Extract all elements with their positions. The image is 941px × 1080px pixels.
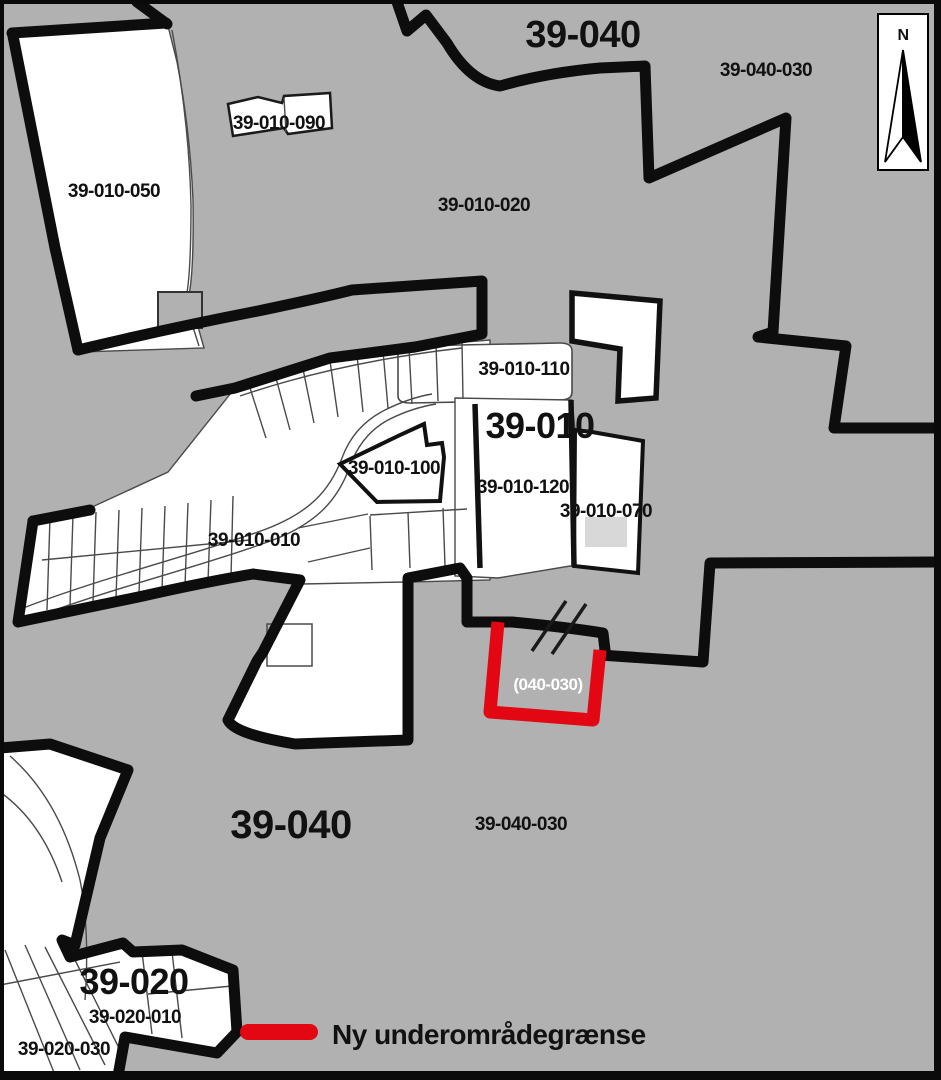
label-area-39-010-070: 39-010-070 (560, 501, 652, 522)
label-district-39-040-top: 39-040 (525, 14, 640, 56)
label-area-39-010-010: 39-010-010 (208, 530, 300, 551)
label-area-39-040-030-bottom: 39-040-030 (475, 814, 567, 835)
label-area-39-020-030: 39-020-030 (18, 1039, 110, 1060)
map-canvas: 39-04039-040-03039-010-09039-010-05039-0… (0, 0, 941, 1080)
label-area-39-010-100: 39-010-100 (348, 458, 440, 479)
plan-map: 39-04039-040-03039-010-09039-010-05039-0… (0, 0, 941, 1080)
label-new-area-040-030: (040-030) (513, 675, 582, 694)
label-area-39-010-050: 39-010-050 (68, 181, 160, 202)
label-legend-new-subarea-boundary: Ny underområdegrænse (332, 1019, 646, 1050)
label-district-39-010: 39-010 (485, 405, 594, 446)
label-area-39-010-090: 39-010-090 (233, 113, 325, 134)
label-area-39-040-030-top: 39-040-030 (720, 60, 812, 81)
label-district-39-020: 39-020 (79, 961, 188, 1002)
label-district-39-040-bottom: 39-040 (230, 803, 352, 847)
label-north-letter: N (897, 27, 908, 44)
label-area-39-010-120: 39-010-120 (477, 477, 569, 498)
label-area-39-010-110: 39-010-110 (478, 359, 569, 380)
label-area-39-010-020: 39-010-020 (438, 195, 530, 216)
label-area-39-020-010: 39-020-010 (89, 1007, 181, 1028)
